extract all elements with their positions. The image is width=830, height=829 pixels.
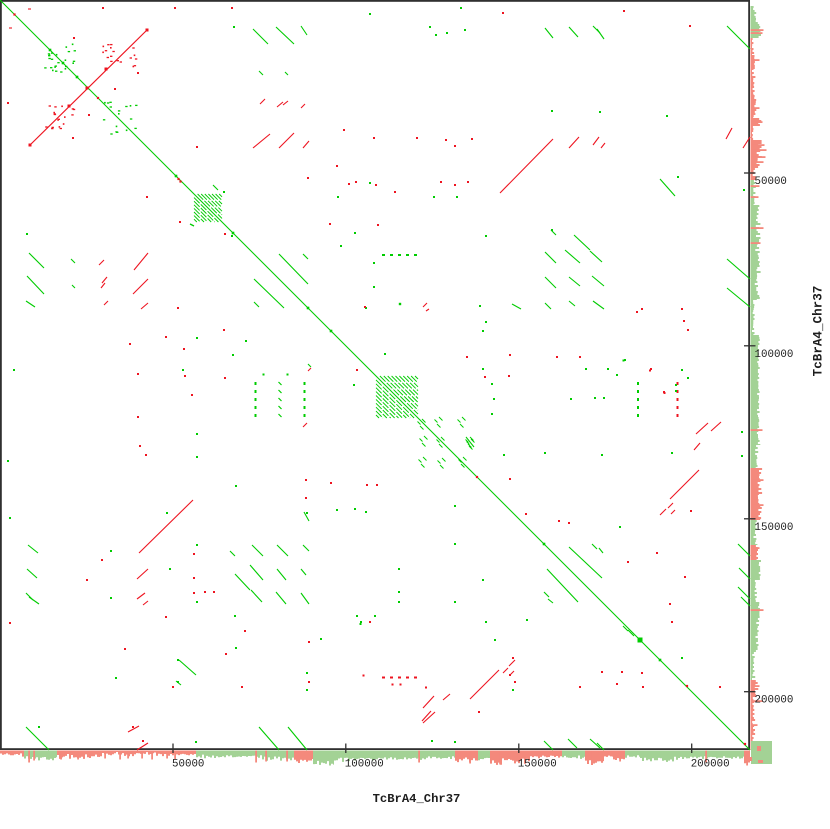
svg-text:TcBrA4_Chr37: TcBrA4_Chr37 [812, 286, 826, 377]
svg-text:TcBrA4_Chr37: TcBrA4_Chr37 [373, 792, 461, 806]
svg-text:50000: 50000 [755, 176, 787, 188]
svg-text:100000: 100000 [755, 349, 794, 361]
svg-text:100000: 100000 [345, 759, 384, 771]
svg-text:150000: 150000 [518, 759, 557, 771]
svg-text:50000: 50000 [172, 759, 204, 771]
svg-text:200000: 200000 [755, 695, 794, 707]
svg-text:150000: 150000 [755, 522, 794, 534]
svg-text:200000: 200000 [691, 759, 730, 771]
